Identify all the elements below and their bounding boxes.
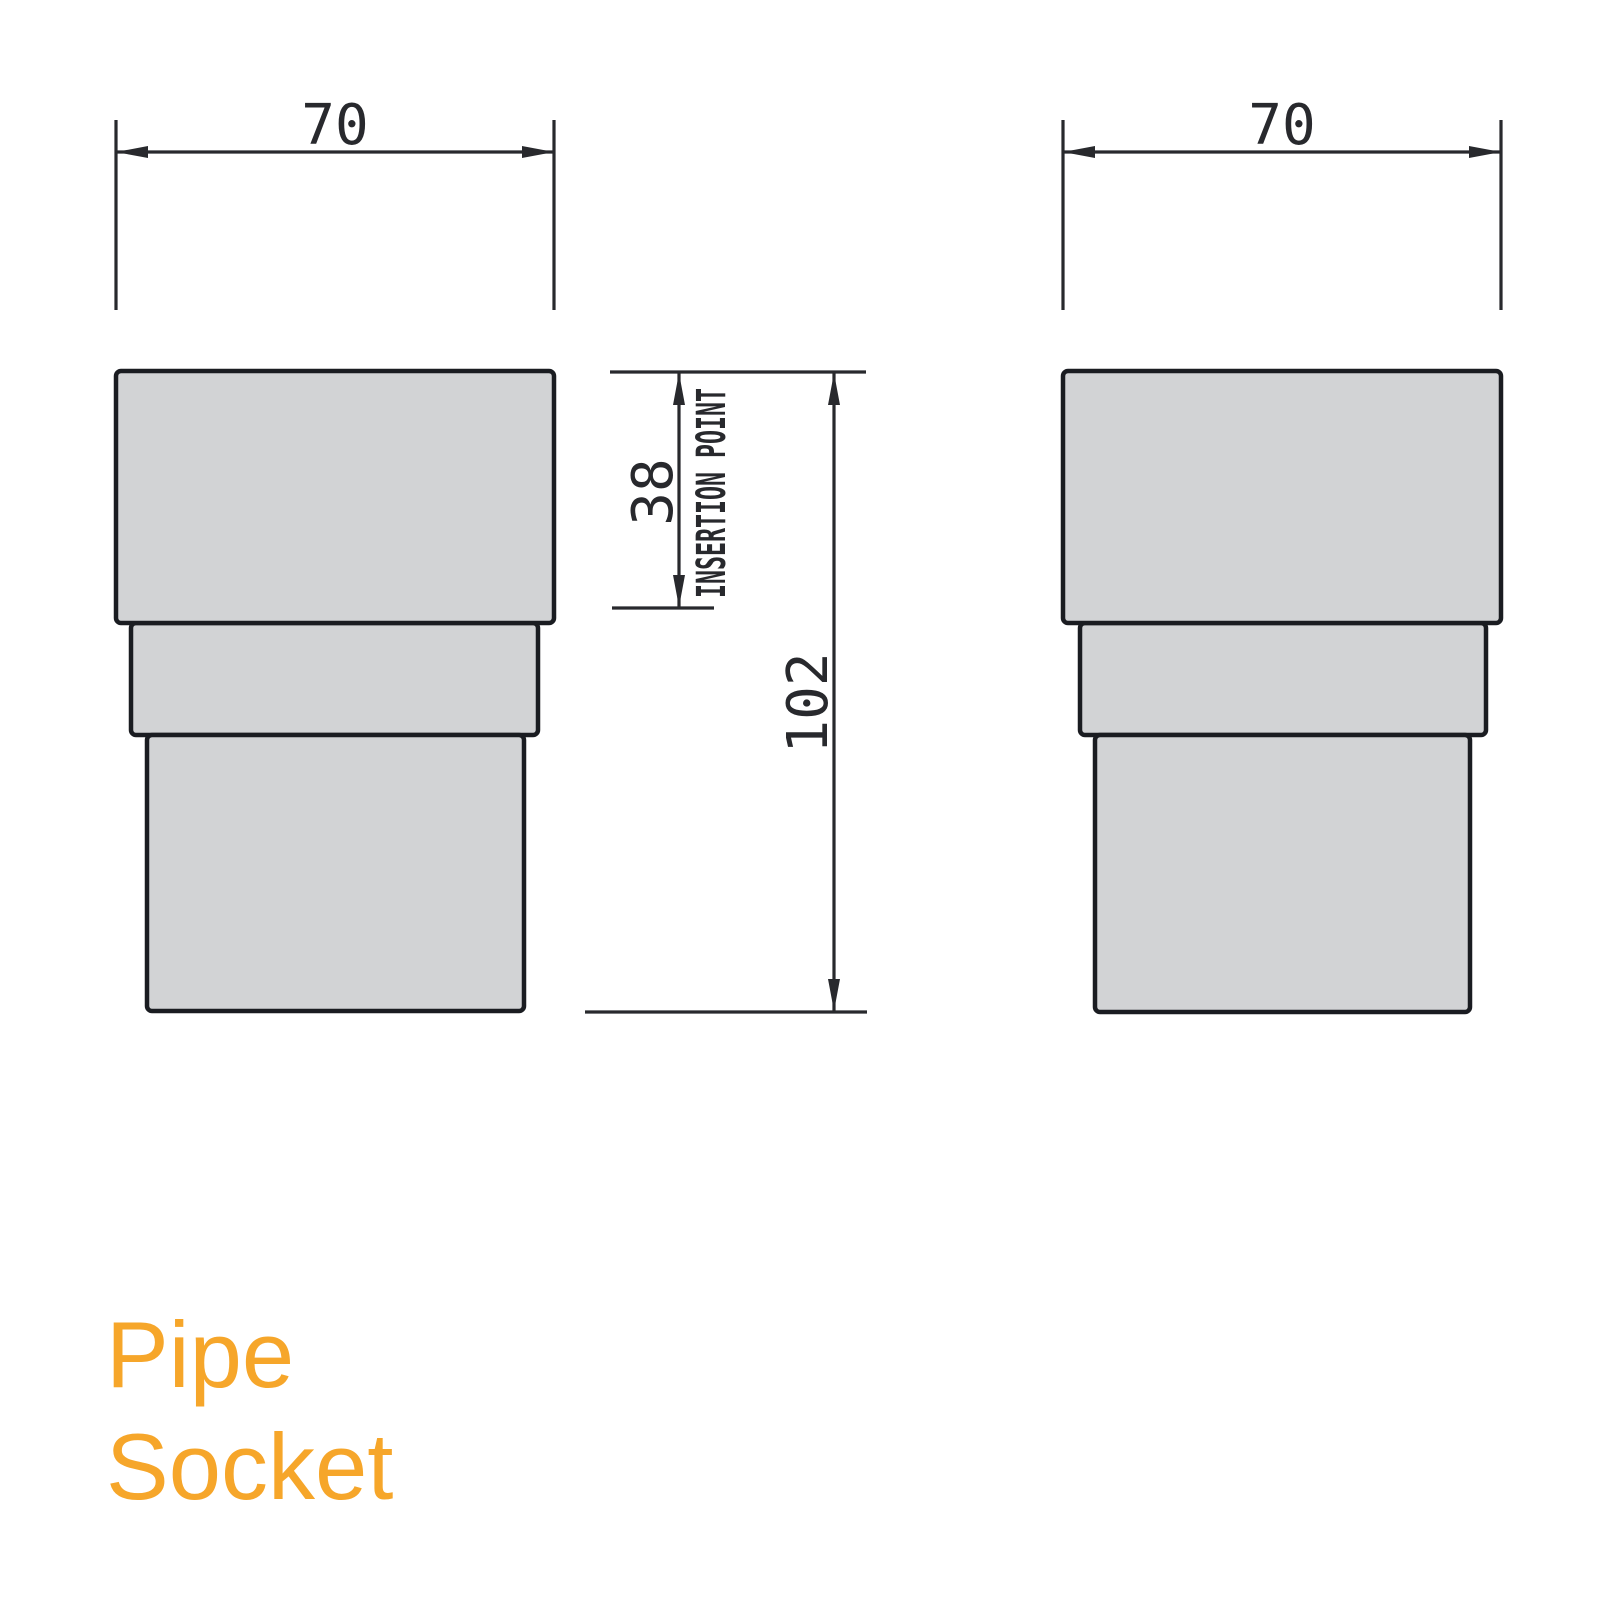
insertion-depth-value: 38 bbox=[621, 458, 686, 525]
front-socket-middle-section bbox=[131, 623, 538, 735]
arrowhead-up-icon bbox=[673, 373, 685, 405]
arrowhead-right-icon bbox=[522, 146, 554, 158]
height-dimensions: 38 INSERTION POINT 102 bbox=[585, 372, 867, 1012]
arrowhead-down-icon bbox=[673, 575, 685, 607]
drawing-canvas: 70 38 INSERTION POINT bbox=[0, 0, 1600, 1600]
side-width-dimension: 70 bbox=[1063, 93, 1501, 310]
insertion-depth-dimension: 38 INSERTION POINT bbox=[621, 373, 735, 607]
insertion-point-label: INSERTION POINT bbox=[689, 388, 735, 598]
side-width-dimension-value: 70 bbox=[1248, 93, 1315, 158]
front-width-dimension-value: 70 bbox=[301, 93, 368, 158]
arrowhead-left-icon bbox=[1063, 146, 1095, 158]
front-socket-top-section bbox=[116, 371, 554, 623]
arrowhead-up-icon bbox=[828, 373, 840, 405]
overall-height-value: 102 bbox=[776, 652, 841, 753]
front-socket-body bbox=[116, 371, 554, 1011]
side-socket-body bbox=[1063, 371, 1501, 1012]
side-socket-bottom-section bbox=[1095, 735, 1470, 1012]
arrowhead-left-icon bbox=[116, 146, 148, 158]
product-title-line2: Socket bbox=[106, 1411, 393, 1523]
side-socket-top-section bbox=[1063, 371, 1501, 623]
side-view: 70 bbox=[1063, 93, 1501, 1012]
product-title: Pipe Socket bbox=[106, 1299, 393, 1523]
arrowhead-down-icon bbox=[828, 979, 840, 1011]
arrowhead-right-icon bbox=[1469, 146, 1501, 158]
side-socket-middle-section bbox=[1080, 623, 1486, 735]
front-view: 70 bbox=[116, 93, 554, 1011]
product-title-line1: Pipe bbox=[106, 1299, 393, 1411]
front-socket-bottom-section bbox=[147, 735, 524, 1011]
front-width-dimension: 70 bbox=[116, 93, 554, 310]
overall-height-dimension: 102 bbox=[776, 373, 841, 1011]
